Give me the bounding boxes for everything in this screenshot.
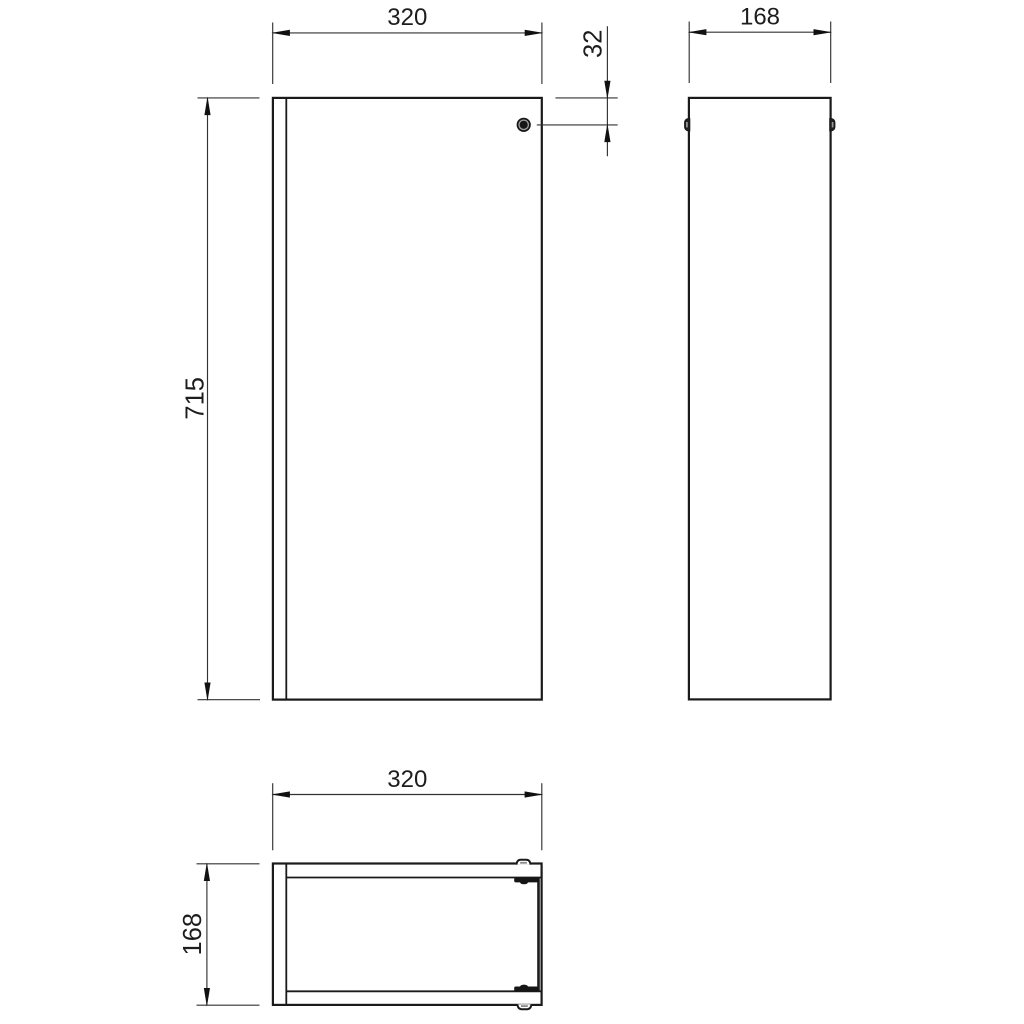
svg-text:168: 168 — [179, 913, 207, 956]
svg-text:32: 32 — [579, 30, 607, 58]
svg-text:320: 320 — [387, 766, 427, 793]
svg-text:168: 168 — [740, 4, 780, 31]
svg-text:715: 715 — [181, 377, 209, 420]
svg-text:320: 320 — [387, 4, 427, 31]
